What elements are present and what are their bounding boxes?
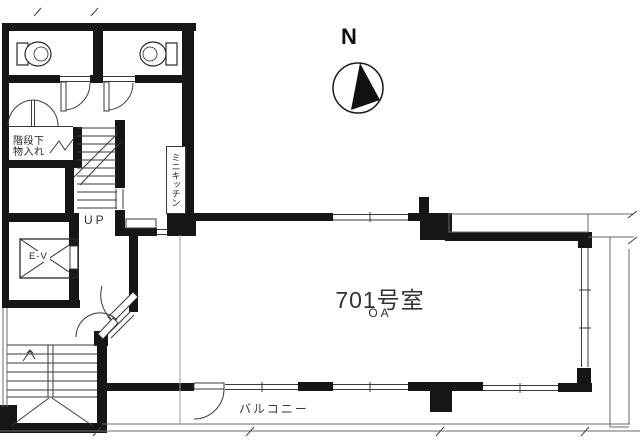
wall [577,368,591,383]
window-bottom-2 [333,382,408,392]
floor-plan: N 701号室 OA UP E-V バルコニー 階段下 物入れ ミニキッチン [0,0,640,441]
floor-type-label: OA [325,306,435,320]
doorway-sill [60,77,90,82]
side-balcony-line [610,237,629,427]
pillar [419,197,429,213]
wall [115,228,157,236]
toilet-bowl-inner [143,47,157,61]
toilet-bowl-inner [34,47,48,61]
wall [298,382,333,391]
step-box [126,219,156,228]
door-leaf [104,82,109,111]
stair-landing-diagonal [11,398,93,426]
tick [628,237,637,244]
door-leaf [61,82,66,111]
kitchen-opening [157,230,167,235]
wall [97,342,107,433]
kitchen-nook [126,219,156,228]
wall [73,127,82,168]
stair-steps [7,345,97,397]
stairs-lower [7,345,97,426]
wall [2,300,80,308]
closet-door-arc [33,100,58,126]
wall [115,210,125,230]
doorway-sill [103,77,135,82]
wall [107,383,194,391]
wall [115,120,125,188]
outline-lines [0,214,640,431]
stairs-up-label: UP [84,213,107,227]
wall [93,23,103,83]
eaves-box [449,214,588,232]
tick [34,8,41,16]
window-bottom-3 [483,383,558,393]
stair-opening [116,189,123,209]
mini-kitchen-label: ミニキッチン [166,146,186,214]
window-top [333,212,408,222]
pillar [167,213,196,236]
wall [2,213,77,222]
window-right [579,248,591,367]
eaves-line [588,214,634,237]
window-bottom-1 [225,382,298,392]
door-arc [194,389,224,419]
door-arc [66,83,90,110]
closet-door-arc [8,100,33,126]
elevator-label: E-V [27,251,50,262]
wall [135,75,182,83]
wall [558,383,592,392]
toilet-left [17,42,51,66]
wall [65,163,74,217]
storage-pointer-zigzag [50,138,74,153]
stair-rail [48,345,53,397]
door-arc [109,83,133,110]
wall [194,213,333,221]
tick [91,8,98,16]
pillar [430,391,452,412]
door-leaf [194,383,224,389]
wall [9,75,60,83]
toilet-right [140,42,177,66]
compass [333,63,383,113]
north-label: N [341,24,357,50]
balcony-label: バルコニー [239,400,309,417]
wall [408,382,483,391]
storage-label-line2: 物入れ [13,143,45,158]
wall [90,75,103,83]
closet-door-panels [32,100,35,127]
stair-direction-arrow [23,350,35,361]
toilet-tank [166,43,177,65]
outer-wall-thin-line [3,308,7,407]
wall [578,232,592,248]
wall [445,232,583,241]
